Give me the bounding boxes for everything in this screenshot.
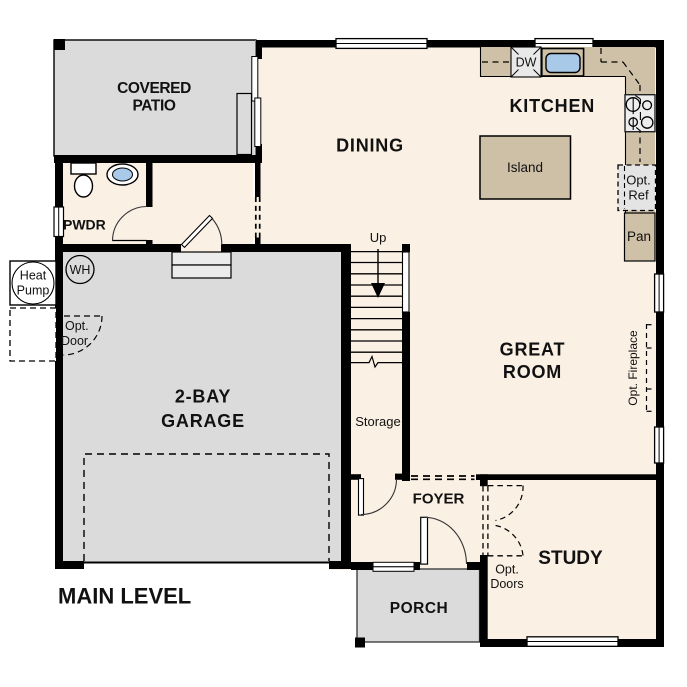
svg-text:GARAGE: GARAGE xyxy=(161,411,245,431)
svg-text:GREAT: GREAT xyxy=(500,340,566,360)
svg-text:Doors: Doors xyxy=(490,577,523,591)
svg-text:ROOM: ROOM xyxy=(503,362,562,382)
svg-text:Up: Up xyxy=(370,230,387,245)
svg-text:PWDR: PWDR xyxy=(63,217,106,233)
svg-text:Opt.: Opt. xyxy=(626,173,651,188)
svg-text:Storage: Storage xyxy=(355,414,401,429)
svg-text:Opt. Fireplace: Opt. Fireplace xyxy=(626,330,640,406)
svg-text:DINING: DINING xyxy=(336,136,404,156)
svg-text:Heat: Heat xyxy=(20,269,47,283)
svg-text:Pan: Pan xyxy=(627,229,651,244)
svg-text:FOYER: FOYER xyxy=(413,491,465,508)
svg-text:Opt.: Opt. xyxy=(495,563,519,577)
svg-text:Island: Island xyxy=(507,160,543,175)
svg-text:Opt.: Opt. xyxy=(65,319,89,333)
svg-text:DW: DW xyxy=(516,56,537,70)
svg-text:WH: WH xyxy=(70,263,91,277)
svg-text:KITCHEN: KITCHEN xyxy=(509,96,595,116)
svg-text:PORCH: PORCH xyxy=(390,600,448,617)
svg-text:PATIO: PATIO xyxy=(132,98,175,115)
svg-text:MAIN LEVEL: MAIN LEVEL xyxy=(58,584,191,609)
svg-text:COVERED: COVERED xyxy=(117,80,191,97)
svg-text:Pump: Pump xyxy=(17,284,50,298)
svg-text:Ref: Ref xyxy=(628,188,649,203)
svg-text:STUDY: STUDY xyxy=(538,548,603,569)
svg-text:2-BAY: 2-BAY xyxy=(175,387,231,407)
svg-text:Door: Door xyxy=(61,334,88,348)
